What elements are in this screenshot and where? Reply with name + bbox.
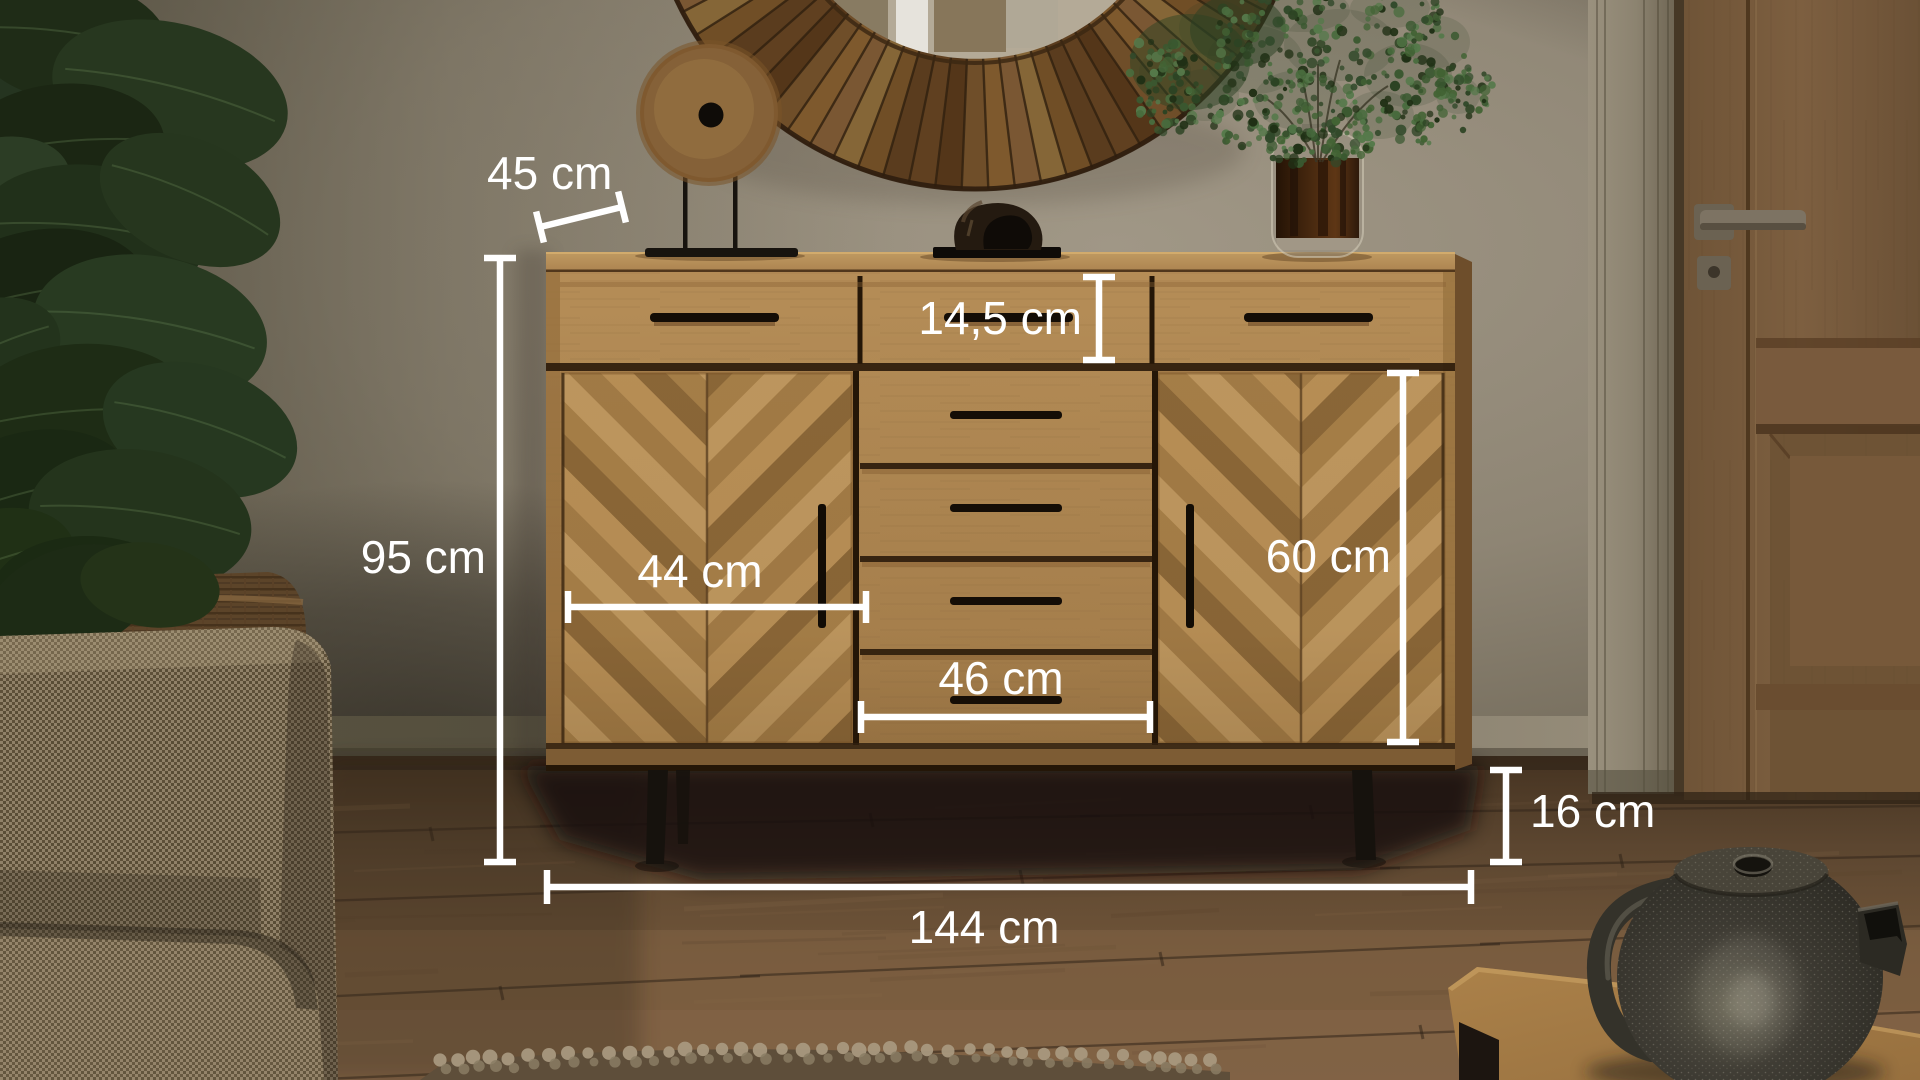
svg-text:44 cm: 44 cm bbox=[637, 545, 762, 597]
svg-text:14,5 cm: 14,5 cm bbox=[918, 292, 1082, 344]
svg-text:60 cm: 60 cm bbox=[1266, 530, 1391, 582]
svg-text:45 cm: 45 cm bbox=[487, 147, 612, 199]
svg-text:16 cm: 16 cm bbox=[1530, 785, 1655, 837]
svg-text:144 cm: 144 cm bbox=[909, 901, 1060, 953]
svg-text:46 cm: 46 cm bbox=[938, 652, 1063, 704]
svg-text:95 cm: 95 cm bbox=[361, 531, 486, 583]
